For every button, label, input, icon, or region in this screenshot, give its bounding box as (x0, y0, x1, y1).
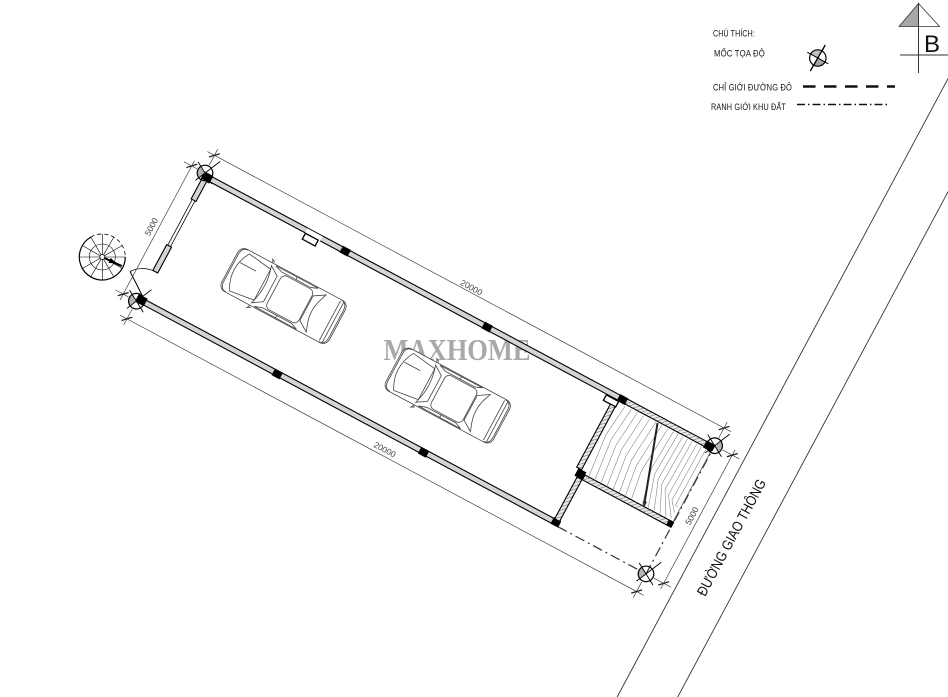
svg-text:5000: 5000 (142, 216, 160, 238)
svg-text:CHỈ GIỚI ĐƯỜNG ĐỎ: CHỈ GIỚI ĐƯỜNG ĐỎ (713, 82, 792, 94)
svg-text:MỐC TỌA ĐỘ: MỐC TỌA ĐỘ (714, 48, 765, 60)
svg-text:RANH GIỚI KHU ĐẤT: RANH GIỚI KHU ĐẤT (711, 102, 786, 113)
svg-text:5000: 5000 (683, 505, 701, 527)
svg-text:CHÚ THÍCH:: CHÚ THÍCH: (713, 29, 755, 40)
svg-text:B: B (924, 31, 940, 58)
svg-text:20000: 20000 (459, 277, 485, 297)
svg-text:ĐƯỜNG GIAO THÔNG: ĐƯỜNG GIAO THÔNG (694, 476, 770, 599)
